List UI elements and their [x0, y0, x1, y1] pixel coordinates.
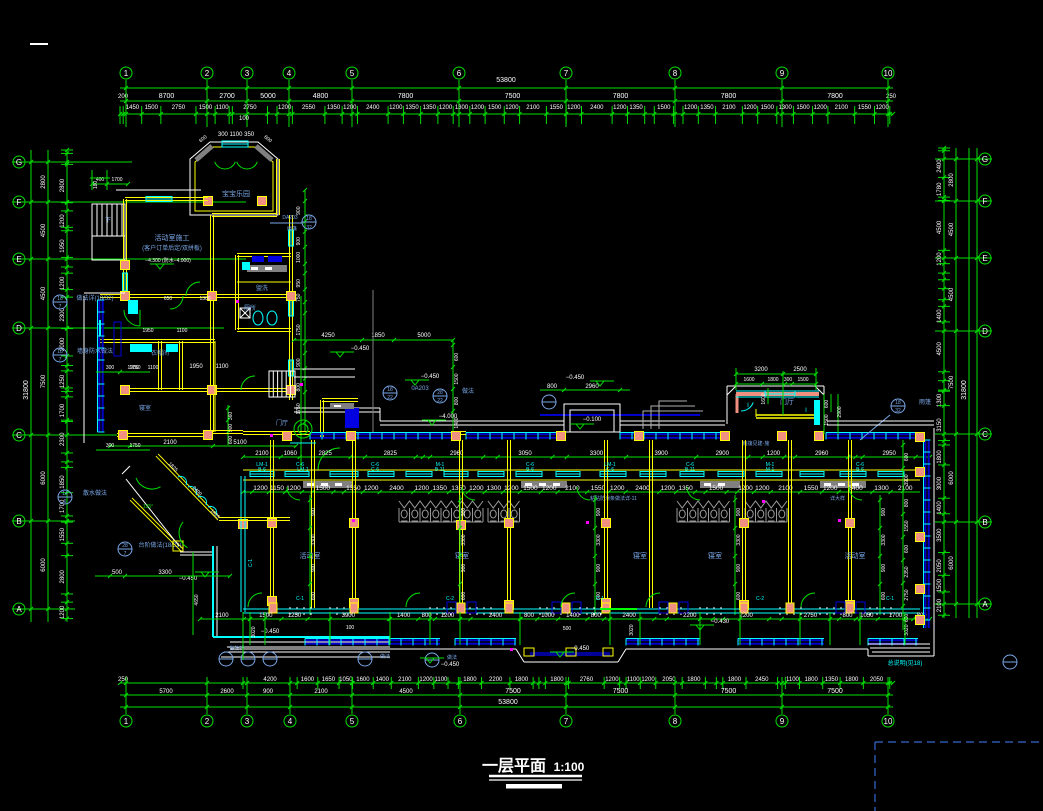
svg-text:B-6: B-6	[258, 467, 266, 473]
svg-text:7: 7	[59, 304, 62, 310]
svg-text:B-6: B-6	[526, 467, 534, 473]
svg-text:1400: 1400	[937, 309, 943, 323]
svg-text:7500: 7500	[949, 375, 955, 389]
svg-text:2100: 2100	[398, 677, 412, 683]
svg-text:1300: 1300	[199, 296, 210, 302]
svg-text:2050: 2050	[662, 677, 676, 683]
svg-text:1600: 1600	[743, 377, 754, 383]
svg-text:2400: 2400	[848, 485, 863, 492]
svg-text:A: A	[16, 605, 22, 614]
svg-text:7: 7	[564, 69, 569, 78]
svg-text:2960: 2960	[585, 384, 599, 390]
svg-text:1100: 1100	[216, 364, 230, 370]
svg-text:−0.450: −0.450	[179, 576, 198, 582]
svg-text:1800: 1800	[845, 677, 859, 683]
svg-text:2200: 2200	[683, 613, 697, 619]
svg-text:宝宝乐园: 宝宝乐园	[222, 189, 250, 198]
svg-text:1200: 1200	[60, 276, 66, 290]
svg-text:2100: 2100	[778, 485, 793, 492]
svg-text:4500: 4500	[41, 286, 47, 300]
svg-text:C-6: C-6	[371, 467, 379, 473]
svg-text:4500: 4500	[399, 689, 413, 695]
svg-text:4250: 4250	[321, 333, 335, 339]
svg-text:5100: 5100	[233, 440, 247, 446]
svg-text:2750: 2750	[804, 613, 818, 619]
svg-text:1200: 1200	[469, 485, 484, 492]
svg-text:7800: 7800	[613, 93, 629, 100]
svg-text:1100: 1100	[177, 328, 188, 334]
svg-text:2760: 2760	[580, 677, 594, 683]
svg-text:1200: 1200	[389, 105, 403, 111]
svg-text:1850: 1850	[60, 475, 66, 489]
svg-text:2750: 2750	[904, 589, 910, 600]
svg-text:1400: 1400	[397, 613, 411, 619]
svg-text:6000: 6000	[949, 471, 955, 485]
svg-text:2900: 2900	[837, 406, 843, 417]
svg-text:5: 5	[350, 69, 355, 78]
svg-text:盥洗: 盥洗	[256, 284, 268, 292]
svg-text:2300: 2300	[60, 432, 66, 446]
svg-text:1700: 1700	[889, 613, 903, 619]
svg-text:2: 2	[205, 717, 210, 726]
svg-text:800: 800	[547, 384, 558, 390]
svg-text:1800: 1800	[937, 450, 943, 464]
svg-text:−4.300 (防水−4.000): −4.300 (防水−4.000)	[145, 257, 191, 264]
svg-text:G: G	[982, 155, 988, 164]
svg-text:4500: 4500	[949, 287, 955, 301]
svg-text:3300: 3300	[596, 534, 602, 545]
svg-text:−0.450: −0.450	[441, 662, 460, 668]
svg-text:800: 800	[454, 397, 460, 406]
svg-text:1:100: 1:100	[554, 760, 585, 774]
svg-text:E: E	[982, 254, 987, 263]
svg-text:950: 950	[296, 279, 302, 288]
svg-text:0A203: 0A203	[411, 386, 429, 392]
svg-text:32: 32	[306, 225, 312, 231]
svg-text:100: 100	[346, 625, 355, 631]
svg-text:1200: 1200	[814, 105, 828, 111]
svg-text:4: 4	[288, 717, 293, 726]
svg-text:寝室: 寝室	[139, 404, 151, 412]
svg-text:4500: 4500	[41, 223, 47, 237]
svg-text:200: 200	[118, 94, 129, 100]
svg-text:1950: 1950	[60, 239, 66, 253]
svg-text:1300: 1300	[487, 485, 502, 492]
svg-text:2200: 2200	[740, 613, 754, 619]
svg-text:D: D	[982, 327, 988, 336]
svg-text:1650: 1650	[322, 677, 336, 683]
svg-text:7500: 7500	[721, 688, 737, 695]
svg-text:10: 10	[884, 69, 893, 78]
svg-text:1700: 1700	[60, 403, 66, 417]
svg-text:1400: 1400	[376, 677, 390, 683]
svg-text:180: 180	[93, 181, 99, 190]
svg-text:3500: 3500	[937, 528, 943, 542]
svg-text:3900: 3900	[904, 474, 910, 485]
svg-text:1200: 1200	[542, 485, 557, 492]
svg-text:D: D	[16, 324, 22, 333]
svg-text:F: F	[17, 198, 22, 207]
svg-text:5000: 5000	[417, 333, 431, 339]
svg-text:1950: 1950	[142, 328, 153, 334]
svg-text:1350: 1350	[327, 105, 341, 111]
svg-text:300: 300	[106, 365, 115, 371]
svg-text:活动室施工: 活动室施工	[155, 233, 190, 242]
svg-text:9: 9	[780, 717, 785, 726]
svg-text:28: 28	[122, 543, 128, 549]
svg-text:2100: 2100	[255, 451, 269, 457]
svg-text:1550: 1550	[591, 485, 606, 492]
svg-text:寝室: 寝室	[455, 551, 469, 560]
svg-text:900: 900	[736, 508, 742, 517]
svg-text:7500: 7500	[827, 688, 843, 695]
svg-text:18: 18	[57, 349, 63, 355]
svg-text:2950: 2950	[882, 451, 896, 457]
svg-text:2700: 2700	[219, 93, 235, 100]
svg-text:3300: 3300	[736, 534, 742, 545]
svg-text:600: 600	[904, 453, 910, 462]
svg-text:2100: 2100	[215, 613, 229, 619]
svg-text:做法: 做法	[462, 387, 474, 395]
svg-text:2750: 2750	[172, 105, 186, 111]
svg-text:总说明(见18): 总说明(见18)	[888, 659, 923, 667]
svg-text:1100: 1100	[786, 677, 800, 683]
svg-text:3: 3	[245, 717, 250, 726]
svg-text:E: E	[16, 255, 21, 264]
svg-text:7500: 7500	[505, 93, 521, 100]
svg-text:1050: 1050	[339, 677, 353, 683]
svg-text:3900: 3900	[654, 451, 668, 457]
svg-text:1500: 1500	[199, 105, 213, 111]
svg-text:3300: 3300	[590, 451, 604, 457]
svg-text:门厅: 门厅	[780, 397, 794, 406]
svg-text:1350: 1350	[405, 105, 419, 111]
svg-text:2825: 2825	[318, 451, 332, 457]
svg-text:1300: 1300	[874, 485, 889, 492]
svg-text:2960: 2960	[450, 451, 464, 457]
svg-text:C-1: C-1	[886, 596, 894, 602]
svg-text:1150: 1150	[270, 485, 284, 492]
svg-text:6: 6	[64, 499, 67, 505]
svg-text:1200: 1200	[60, 214, 66, 228]
svg-text:2: 2	[205, 69, 210, 78]
svg-text:1400: 1400	[937, 501, 943, 515]
svg-text:1300: 1300	[778, 105, 792, 111]
svg-text:1200: 1200	[743, 105, 757, 111]
svg-text:900: 900	[881, 564, 887, 573]
svg-text:C: C	[982, 430, 988, 439]
svg-text:7: 7	[59, 357, 62, 363]
svg-text:600: 600	[454, 353, 460, 362]
svg-text:(客户订单后定/双拼板): (客户订单后定/双拼板)	[142, 244, 202, 252]
svg-text:2350: 2350	[904, 566, 910, 577]
svg-text:1500: 1500	[796, 105, 810, 111]
svg-text:1500: 1500	[937, 578, 943, 592]
svg-text:32: 32	[895, 408, 901, 414]
svg-text:7800: 7800	[827, 93, 843, 100]
svg-text:5000: 5000	[260, 93, 276, 100]
svg-text:B: B	[982, 518, 987, 527]
svg-text:1200: 1200	[767, 451, 781, 457]
svg-text:1200: 1200	[875, 105, 889, 111]
svg-text:−0.450: −0.450	[566, 375, 585, 381]
svg-text:1800: 1800	[767, 377, 778, 383]
svg-text:1780: 1780	[937, 182, 943, 196]
svg-text:1800: 1800	[728, 677, 742, 683]
svg-text:雨篷见建-施: 雨篷见建-施	[743, 440, 770, 447]
svg-text:18: 18	[57, 296, 63, 302]
svg-text:800: 800	[904, 499, 910, 508]
svg-text:8700: 8700	[159, 93, 175, 100]
svg-text:1800: 1800	[804, 677, 818, 683]
svg-text:800: 800	[591, 613, 602, 619]
svg-text:1500: 1500	[454, 373, 460, 384]
svg-text:1200: 1200	[684, 105, 698, 111]
svg-text:2500: 2500	[793, 367, 807, 373]
svg-text:1800: 1800	[515, 677, 529, 683]
svg-text:2400: 2400	[590, 105, 604, 111]
svg-text:−0.430: −0.430	[711, 619, 730, 625]
svg-text:2100: 2100	[314, 689, 328, 695]
svg-text:B-11: B-11	[685, 467, 695, 473]
svg-text:C-1: C-1	[248, 559, 254, 567]
svg-text:散水做法: 散水做法	[83, 489, 107, 497]
svg-text:1500: 1500	[657, 105, 671, 111]
svg-text:1800: 1800	[687, 677, 701, 683]
svg-text:3020: 3020	[629, 624, 635, 635]
svg-text:1300: 1300	[937, 393, 943, 407]
svg-text:1500: 1500	[316, 485, 331, 492]
svg-text:1050: 1050	[860, 613, 874, 619]
svg-text:53800: 53800	[498, 699, 518, 706]
svg-text:雨篷: 雨篷	[919, 398, 931, 406]
svg-text:3020: 3020	[251, 626, 257, 637]
svg-text:18: 18	[306, 216, 312, 222]
svg-text:1250: 1250	[60, 374, 66, 388]
svg-text:2600: 2600	[220, 689, 234, 695]
svg-text:53800: 53800	[496, 77, 516, 84]
svg-text:1200: 1200	[660, 485, 675, 492]
svg-text:900: 900	[263, 689, 274, 695]
svg-text:1000: 1000	[296, 252, 302, 263]
svg-text:2100: 2100	[722, 105, 736, 111]
svg-text:900: 900	[736, 564, 742, 573]
svg-text:8: 8	[673, 69, 678, 78]
svg-text:1350: 1350	[346, 485, 361, 492]
svg-text:3200: 3200	[754, 367, 768, 373]
svg-text:1200: 1200	[567, 105, 581, 111]
svg-text:1200: 1200	[823, 485, 838, 492]
svg-text:2400: 2400	[366, 105, 380, 111]
svg-text:3150: 3150	[937, 418, 943, 432]
svg-text:2450: 2450	[755, 677, 769, 683]
svg-text:C: C	[16, 431, 22, 440]
svg-text:门厅: 门厅	[276, 419, 288, 427]
svg-text:22: 22	[437, 398, 443, 404]
svg-text:2400: 2400	[623, 613, 637, 619]
svg-text:−0.450: −0.450	[261, 629, 280, 635]
svg-text:900: 900	[461, 564, 467, 573]
svg-text:1350: 1350	[700, 105, 714, 111]
svg-text:1800: 1800	[550, 677, 564, 683]
svg-text:4200: 4200	[263, 677, 277, 683]
svg-text:1200: 1200	[605, 677, 619, 683]
svg-text:寝室: 寝室	[633, 551, 647, 560]
svg-text:2800: 2800	[60, 569, 66, 583]
svg-text:18: 18	[387, 387, 393, 393]
svg-text:900: 900	[596, 508, 602, 517]
svg-text:31800: 31800	[961, 380, 968, 400]
svg-text:1100: 1100	[216, 105, 230, 111]
svg-text:1200: 1200	[343, 105, 357, 111]
svg-text:28: 28	[437, 390, 443, 396]
svg-text:300 1100 350: 300 1100 350	[218, 132, 255, 138]
svg-text:下: 下	[105, 217, 111, 224]
svg-text:1550: 1550	[550, 105, 564, 111]
svg-text:2050: 2050	[937, 559, 943, 573]
svg-text:6000: 6000	[949, 556, 955, 570]
svg-text:2400: 2400	[389, 485, 404, 492]
svg-text:7: 7	[564, 717, 569, 726]
svg-text:22: 22	[387, 395, 393, 401]
svg-text:4: 4	[287, 69, 292, 78]
svg-text:6: 6	[457, 69, 462, 78]
svg-text:3300: 3300	[881, 534, 887, 545]
svg-text:9: 9	[780, 69, 785, 78]
svg-text:7500: 7500	[613, 688, 629, 695]
svg-text:800: 800	[524, 613, 535, 619]
svg-text:1200: 1200	[60, 605, 66, 619]
svg-text:900: 900	[311, 564, 317, 573]
svg-text:4500: 4500	[937, 342, 943, 356]
svg-text:1100: 1100	[148, 365, 159, 371]
svg-text:详大样: 详大样	[830, 495, 845, 502]
svg-text:300: 300	[784, 377, 793, 383]
svg-text:600: 600	[904, 545, 910, 554]
svg-text:1350: 1350	[432, 485, 447, 492]
svg-text:135°: 135°	[143, 504, 153, 510]
svg-text:4800: 4800	[313, 93, 329, 100]
svg-text:3300: 3300	[158, 570, 172, 576]
svg-text:3: 3	[245, 69, 250, 78]
svg-text:2100: 2100	[835, 105, 849, 111]
svg-text:1200: 1200	[441, 613, 455, 619]
svg-text:1200: 1200	[504, 485, 519, 492]
svg-text:900: 900	[881, 508, 887, 517]
svg-text:1: 1	[124, 69, 129, 78]
svg-text:墙身防水做法: 墙身防水做法	[77, 347, 113, 355]
svg-text:2825: 2825	[384, 451, 398, 457]
svg-text:做法详(18/32): 做法详(18/32)	[76, 294, 113, 302]
svg-text:1100: 1100	[434, 677, 448, 683]
svg-text:2400: 2400	[937, 159, 943, 173]
svg-text:C-2: C-2	[446, 596, 454, 602]
svg-text:−0.450: −0.450	[351, 346, 370, 352]
svg-text:600: 600	[228, 436, 234, 445]
svg-text:600: 600	[461, 592, 467, 601]
svg-text:2050: 2050	[870, 677, 884, 683]
svg-text:8: 8	[673, 717, 678, 726]
svg-text:1000: 1000	[541, 613, 555, 619]
svg-text:1400: 1400	[566, 613, 580, 619]
svg-text:1350: 1350	[423, 105, 437, 111]
svg-text:6000: 6000	[41, 558, 47, 572]
svg-text:2100: 2100	[937, 598, 943, 612]
svg-text:C-6: C-6	[606, 467, 614, 473]
svg-text:1500: 1500	[761, 105, 775, 111]
svg-text:1600: 1600	[356, 677, 370, 683]
svg-text:1950: 1950	[189, 364, 203, 370]
svg-text:900: 900	[311, 508, 317, 517]
svg-text:B-6: B-6	[856, 467, 864, 473]
svg-text:厕所: 厕所	[244, 304, 256, 312]
svg-text:300: 300	[106, 443, 115, 449]
svg-text:800: 800	[842, 613, 853, 619]
svg-text:600: 600	[736, 592, 742, 601]
svg-text:C-1: C-1	[596, 596, 604, 602]
svg-text:1500: 1500	[523, 485, 538, 492]
svg-text:B-11: B-11	[435, 467, 445, 473]
svg-text:600: 600	[311, 592, 317, 601]
svg-text:1500: 1500	[797, 377, 808, 383]
svg-text:1600: 1600	[301, 677, 315, 683]
svg-text:1350: 1350	[629, 105, 643, 111]
svg-text:2400: 2400	[635, 485, 650, 492]
svg-text:500: 500	[563, 626, 572, 632]
svg-text:3300: 3300	[461, 534, 467, 545]
svg-text:C-2: C-2	[756, 596, 764, 602]
svg-text:1500: 1500	[145, 105, 159, 111]
svg-text:1200: 1200	[613, 105, 627, 111]
svg-text:2550: 2550	[302, 105, 316, 111]
svg-text:Ⅰ: Ⅰ	[805, 408, 807, 414]
svg-text:1350: 1350	[451, 485, 466, 492]
svg-text:−4.000: −4.000	[439, 414, 458, 420]
svg-text:7800: 7800	[398, 93, 414, 100]
svg-text:2900: 2900	[716, 451, 730, 457]
svg-text:1200: 1200	[439, 105, 453, 111]
svg-text:一层平面: 一层平面	[482, 757, 546, 775]
svg-text:2800: 2800	[41, 175, 47, 189]
svg-text:2100: 2100	[526, 105, 540, 111]
svg-text:900: 900	[596, 564, 602, 573]
svg-text:3300: 3300	[311, 534, 317, 545]
svg-text:1350: 1350	[678, 485, 693, 492]
svg-text:900: 900	[461, 508, 467, 517]
svg-text:2800: 2800	[60, 178, 66, 192]
svg-text:1550: 1550	[904, 520, 910, 531]
svg-text:2800: 2800	[949, 173, 955, 187]
svg-text:1200: 1200	[286, 485, 301, 492]
svg-text:7800: 7800	[721, 93, 737, 100]
svg-text:G: G	[16, 158, 22, 167]
svg-text:7500: 7500	[41, 374, 47, 388]
svg-text:1500: 1500	[488, 105, 502, 111]
svg-text:31800: 31800	[23, 380, 30, 400]
svg-text:1200: 1200	[755, 485, 770, 492]
svg-text:650: 650	[164, 296, 173, 302]
svg-text:1500: 1500	[824, 414, 830, 425]
svg-text:M-1: M-1	[766, 467, 775, 473]
svg-text:DA203: DA203	[282, 215, 298, 221]
svg-text:1200: 1200	[253, 485, 268, 492]
svg-text:1350: 1350	[825, 677, 839, 683]
svg-text:1550: 1550	[858, 105, 872, 111]
svg-text:7: 7	[124, 551, 127, 557]
svg-text:−0.450: −0.450	[421, 374, 440, 380]
svg-text:3900: 3900	[342, 613, 356, 619]
svg-text:1200: 1200	[278, 105, 292, 111]
